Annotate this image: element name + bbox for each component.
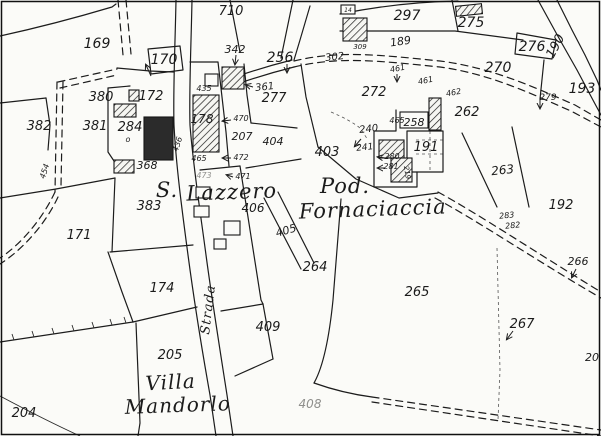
parcel-label: 270 — [485, 60, 512, 76]
parcel-label: 178 — [191, 112, 214, 126]
parcel-label: 408 — [299, 397, 322, 411]
building-361-hatched — [222, 67, 244, 89]
building-284-hatched — [114, 104, 136, 117]
parcel-label: 266 — [568, 255, 589, 268]
parcel-label: 193 — [569, 81, 596, 97]
parcel-label: 170 — [151, 52, 178, 68]
parcel-label: 204 — [12, 406, 37, 421]
parcel-label: 171 — [67, 228, 92, 243]
parcel-label: 207 — [232, 130, 253, 143]
parcel-label: 472 — [233, 153, 248, 162]
parcel-label: 383 — [137, 199, 162, 214]
parcel-label: 302 — [325, 51, 345, 64]
parcel-label: 205 — [158, 348, 183, 363]
parcel-label: 281 — [383, 162, 398, 171]
parcel-label: 241 — [356, 142, 374, 154]
parcel-label: 409 — [256, 320, 281, 335]
parcel-label: 280 — [384, 152, 399, 161]
parcel-label: 20 — [585, 351, 599, 364]
parcel-label: 470 — [233, 114, 248, 123]
parcel-label: 403 — [315, 145, 340, 160]
building-outline-b — [194, 206, 209, 217]
building-368-hatched — [114, 160, 134, 173]
parcel-label: 192 — [549, 198, 574, 213]
parcel-label: 277 — [262, 91, 288, 106]
parcel-label: 191 — [414, 140, 439, 155]
parcel-label: 256 — [267, 50, 294, 66]
parcel-label: 169 — [84, 36, 111, 52]
building-dark-main — [144, 117, 173, 160]
parcel-label: 272 — [362, 85, 387, 100]
building-outline-d — [214, 239, 226, 249]
parcel-label: 275 — [458, 15, 485, 31]
parcel-label: o — [126, 135, 131, 144]
parcel-label: 404 — [263, 135, 284, 148]
place-label: Pod. — [319, 174, 370, 198]
parcel-label: 240 — [359, 123, 379, 136]
parcel-label: 710 — [219, 4, 244, 19]
parcel-label: 283 — [499, 210, 515, 221]
parcel-label: 282 — [505, 220, 521, 231]
place-label: Mandorlo — [123, 391, 231, 419]
parcel-label: 381 — [83, 119, 108, 134]
building-309-hatched — [343, 18, 367, 41]
parcel-label: 258 — [404, 116, 425, 129]
building-small-172 — [129, 90, 139, 101]
parcel-label: 172 — [139, 89, 164, 104]
parcel-label: 368 — [137, 159, 158, 172]
parcel-label: 382 — [27, 119, 52, 134]
parcel-label: 279 — [539, 93, 556, 103]
parcel-label: 267 — [510, 317, 536, 332]
parcel-label: 297 — [394, 8, 421, 24]
parcel-label: 380 — [89, 90, 114, 105]
parcel-label: 264 — [303, 260, 328, 275]
parcel-label: 465 — [389, 116, 404, 125]
map-frame: S.LazzeroPod.FornaciacciaVillaMandorloSt… — [0, 0, 601, 436]
parcel-label: 262 — [455, 105, 480, 120]
parcel-label: 284 — [118, 120, 143, 135]
building-vertical-hatched — [429, 98, 441, 130]
building-outline-c — [224, 221, 240, 235]
parcel-label: 276 — [519, 39, 546, 55]
parcel-label: 471 — [235, 172, 250, 181]
parcel-label: 174 — [150, 281, 175, 296]
parcel-label: 435 — [196, 84, 211, 93]
parcel-label: 342 — [225, 43, 246, 56]
map-svg: S.LazzeroPod.FornaciacciaVillaMandorloSt… — [0, 0, 601, 436]
parcel-label: 14 — [344, 7, 352, 14]
parcel-label: 265 — [405, 285, 430, 300]
parcel-label: 465 — [191, 154, 206, 163]
parcel-label: 309 — [353, 43, 367, 51]
parcel-label: 263 — [490, 162, 514, 178]
parcel-label: 406 — [242, 201, 265, 215]
parcel-label: 473 — [196, 171, 211, 180]
place-label: Villa — [145, 369, 196, 396]
